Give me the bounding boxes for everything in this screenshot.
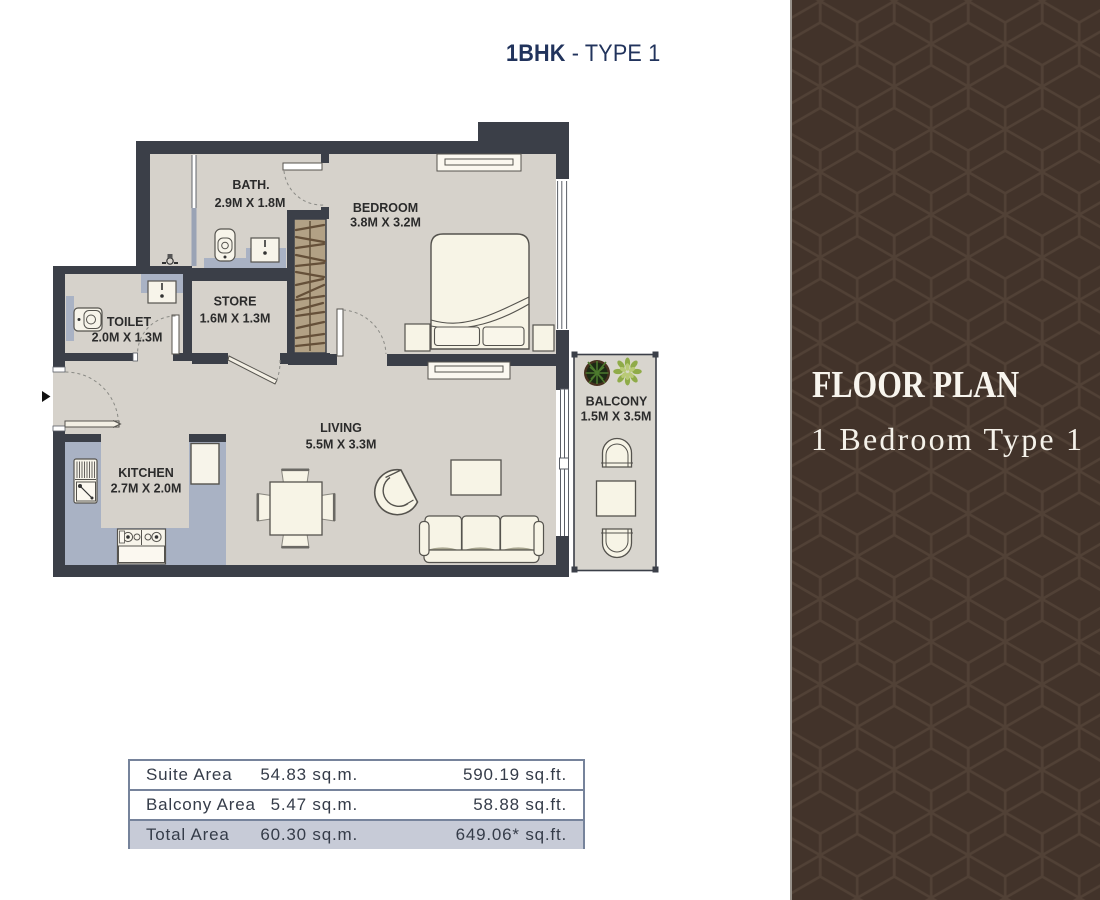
svg-text:1.5M X 3.5M: 1.5M X 3.5M: [581, 410, 652, 424]
svg-text:STORE: STORE: [214, 295, 257, 309]
svg-text:2.7M X 2.0M: 2.7M X 2.0M: [111, 482, 182, 496]
svg-text:TOILET: TOILET: [107, 315, 152, 329]
svg-text:BALCONY: BALCONY: [586, 395, 648, 409]
svg-text:5.5M X 3.3M: 5.5M X 3.3M: [306, 438, 377, 452]
svg-text:3.8M X 3.2M: 3.8M X 3.2M: [350, 216, 421, 230]
svg-text:2.0M X 1.3M: 2.0M X 1.3M: [92, 331, 163, 345]
svg-text:1.6M X 1.3M: 1.6M X 1.3M: [200, 312, 271, 326]
svg-text:LIVING: LIVING: [320, 421, 362, 435]
svg-text:BEDROOM: BEDROOM: [353, 201, 418, 215]
svg-text:KITCHEN: KITCHEN: [118, 466, 174, 480]
svg-text:BATH.: BATH.: [232, 178, 269, 192]
svg-text:2.9M X 1.8M: 2.9M X 1.8M: [215, 196, 286, 210]
